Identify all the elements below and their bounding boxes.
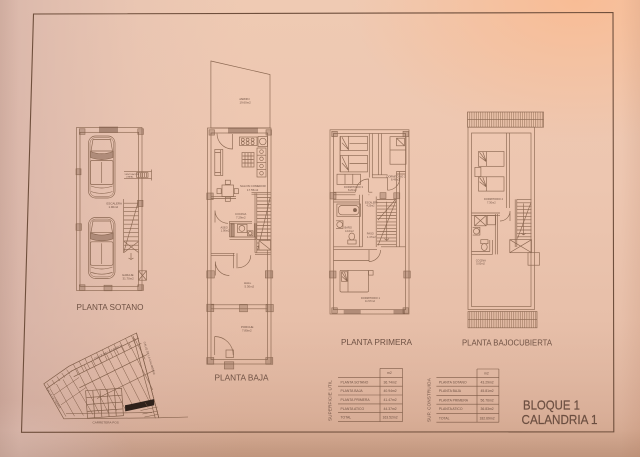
svg-text:ASEO: ASEO <box>221 226 228 230</box>
svg-text:44.37m2: 44.37m2 <box>384 407 397 411</box>
svg-text:17.55m2: 17.55m2 <box>247 188 259 192</box>
svg-text:PLANTA BAJA: PLANTA BAJA <box>341 389 364 393</box>
svg-text:SUP. CONSTRUIDA: SUP. CONSTRUIDA <box>427 378 432 422</box>
svg-text:41.47m2: 41.47m2 <box>384 398 397 402</box>
svg-text:VENTILACION: VENTILACION <box>125 173 140 176</box>
svg-text:45.81m2: 45.81m2 <box>481 389 494 393</box>
svg-text:PLANTA SOTANO: PLANTA SOTANO <box>439 381 467 385</box>
svg-text:PORCHE: PORCHE <box>241 325 253 329</box>
svg-text:m2: m2 <box>484 372 489 376</box>
svg-text:DORMITORIO 4: DORMITORIO 4 <box>484 197 504 201</box>
svg-text:PASO: PASO <box>367 232 374 236</box>
svg-text:DORMITORIO 1: DORMITORIO 1 <box>361 296 381 300</box>
svg-text:7.30m2: 7.30m2 <box>487 200 496 204</box>
svg-text:TOTAL: TOTAL <box>439 417 450 421</box>
svg-text:8.49m2: 8.49m2 <box>391 178 400 182</box>
svg-text:PLANTA PRIMERA: PLANTA PRIMERA <box>341 338 413 347</box>
svg-text:36.83m2: 36.83m2 <box>481 407 494 411</box>
svg-text:CALLE LA TIERRA: CALLE LA TIERRA <box>45 387 62 409</box>
svg-text:CARRETERA POS: CARRETERA POS <box>93 421 119 425</box>
svg-text:182.69m2: 182.69m2 <box>480 417 495 421</box>
svg-text:LINEAL: LINEAL <box>126 175 134 178</box>
svg-text:PLANTA BAJA: PLANTA BAJA <box>439 389 462 393</box>
svg-text:7.29m2: 7.29m2 <box>236 216 246 220</box>
svg-text:ESCALERA: ESCALERA <box>365 202 378 205</box>
svg-text:11.57m2: 11.57m2 <box>365 299 375 303</box>
svg-text:COCINA: COCINA <box>235 212 246 216</box>
svg-text:40.94m2: 40.94m2 <box>384 389 397 393</box>
svg-text:CALLE DE LA CAMELIA: CALLE DE LA CAMELIA <box>94 343 123 360</box>
svg-text:PLANTA PRIMERA: PLANTA PRIMERA <box>439 399 469 403</box>
svg-text:TOTAL: TOTAL <box>341 416 352 420</box>
svg-text:36.74m2: 36.74m2 <box>384 380 397 384</box>
svg-text:PLANTA BAJOCUBIERTA: PLANTA BAJOCUBIERTA <box>462 339 553 348</box>
svg-text:ESCALERA: ESCALERA <box>107 202 122 206</box>
svg-text:1.90m2: 1.90m2 <box>109 205 119 209</box>
svg-text:8.20m2: 8.20m2 <box>348 188 357 192</box>
svg-text:31.70m2: 31.70m2 <box>123 276 135 280</box>
svg-text:163.52m2: 163.52m2 <box>383 416 398 420</box>
svg-text:5.30m2: 5.30m2 <box>245 285 255 289</box>
svg-text:PLANTA SOTANO: PLANTA SOTANO <box>341 380 369 384</box>
svg-text:JARDIN: JARDIN <box>239 97 249 101</box>
svg-text:PLANTA ATICO: PLANTA ATICO <box>341 407 365 411</box>
svg-text:4.20m2: 4.20m2 <box>367 205 376 208</box>
svg-text:PLANTA ATICO: PLANTA ATICO <box>439 407 463 411</box>
svg-text:PLANTA BAJA: PLANTA BAJA <box>215 374 270 383</box>
svg-text:19.60m2: 19.60m2 <box>240 101 252 105</box>
svg-text:CALANDRIA 1: CALANDRIA 1 <box>522 413 598 427</box>
svg-text:56.76m2: 56.76m2 <box>481 399 494 403</box>
svg-text:COCINA: COCINA <box>476 258 486 262</box>
svg-text:SALON COMEDOR: SALON COMEDOR <box>240 184 266 188</box>
svg-text:5.00m2: 5.00m2 <box>476 262 485 266</box>
svg-text:GARAJE: GARAJE <box>122 273 134 277</box>
svg-text:43.29m2: 43.29m2 <box>481 381 494 385</box>
svg-text:DORMITORIO 2: DORMITORIO 2 <box>387 174 407 178</box>
svg-text:BLOQUE 1: BLOQUE 1 <box>523 399 580 413</box>
svg-text:PLANTA SOTANO: PLANTA SOTANO <box>77 303 144 312</box>
svg-text:DORMITORIO 3: DORMITORIO 3 <box>344 185 364 189</box>
svg-text:PLANTA PRIMERA: PLANTA PRIMERA <box>341 398 371 402</box>
svg-text:1.90m2: 1.90m2 <box>221 229 230 233</box>
svg-text:CALLE DE LA CALANDRIA: CALLE DE LA CALANDRIA <box>143 341 157 375</box>
svg-text:HALL: HALL <box>244 281 252 285</box>
svg-text:BAÑO: BAÑO <box>345 225 352 230</box>
svg-text:1.47m2: 1.47m2 <box>367 235 376 239</box>
svg-text:m2: m2 <box>387 371 392 375</box>
svg-text:7.80m2: 7.80m2 <box>242 329 252 333</box>
svg-text:4.10m2: 4.10m2 <box>345 229 354 233</box>
svg-text:SUPERFICIE UTIL: SUPERFICIE UTIL <box>328 380 333 421</box>
